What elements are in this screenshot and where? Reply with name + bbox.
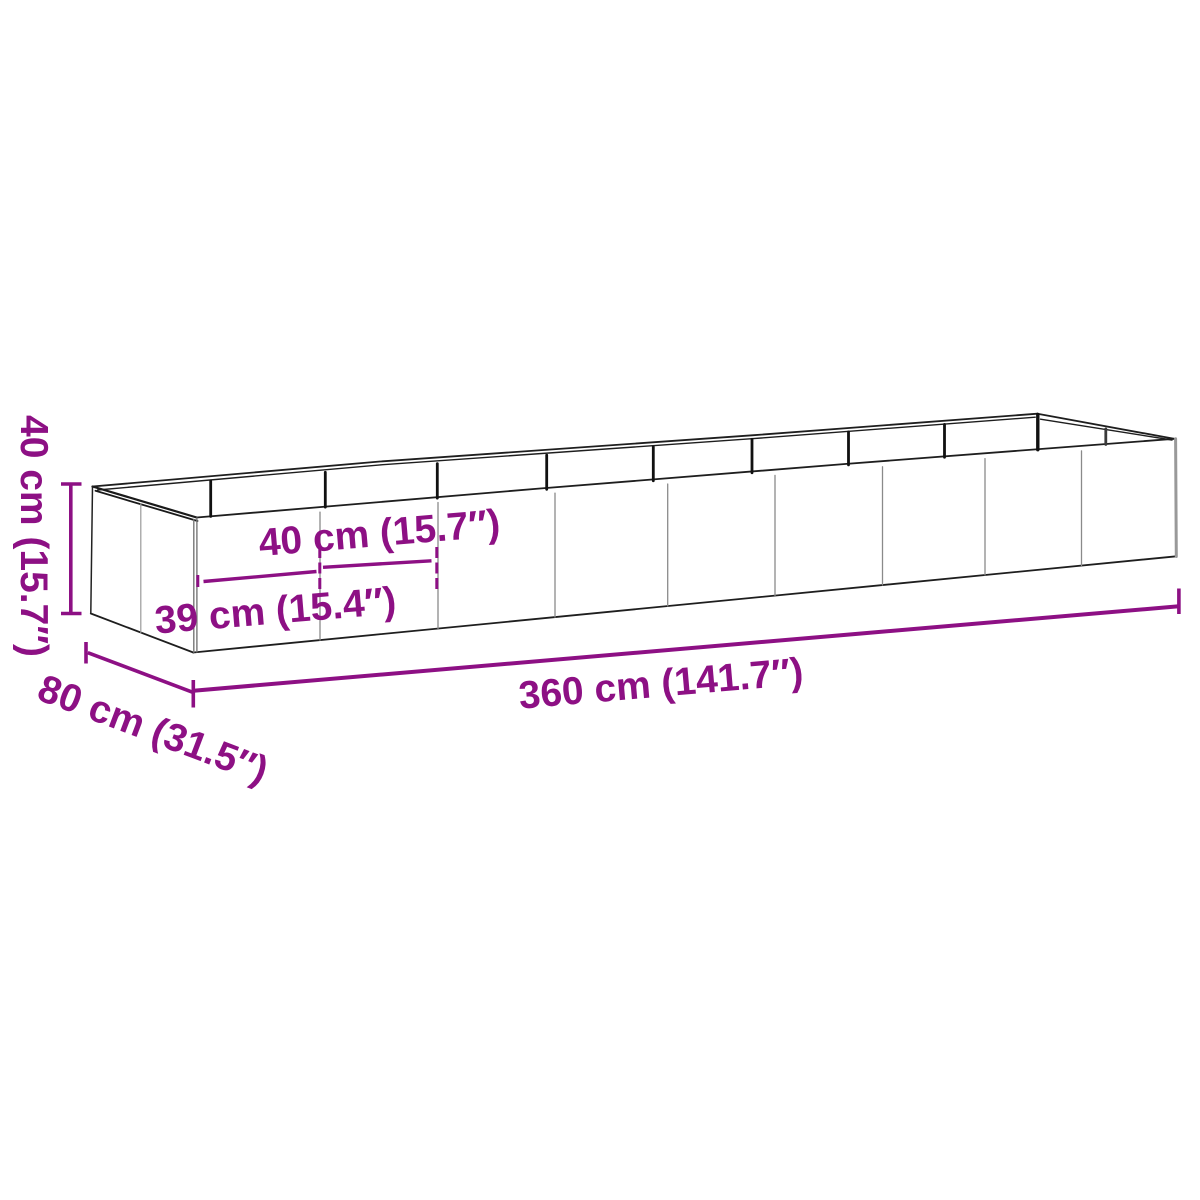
svg-text:40 cm (15.7″): 40 cm (15.7″) (257, 502, 502, 565)
svg-text:40 cm (15.7″): 40 cm (15.7″) (12, 415, 55, 657)
svg-text:39 cm (15.4″): 39 cm (15.4″) (153, 579, 398, 642)
